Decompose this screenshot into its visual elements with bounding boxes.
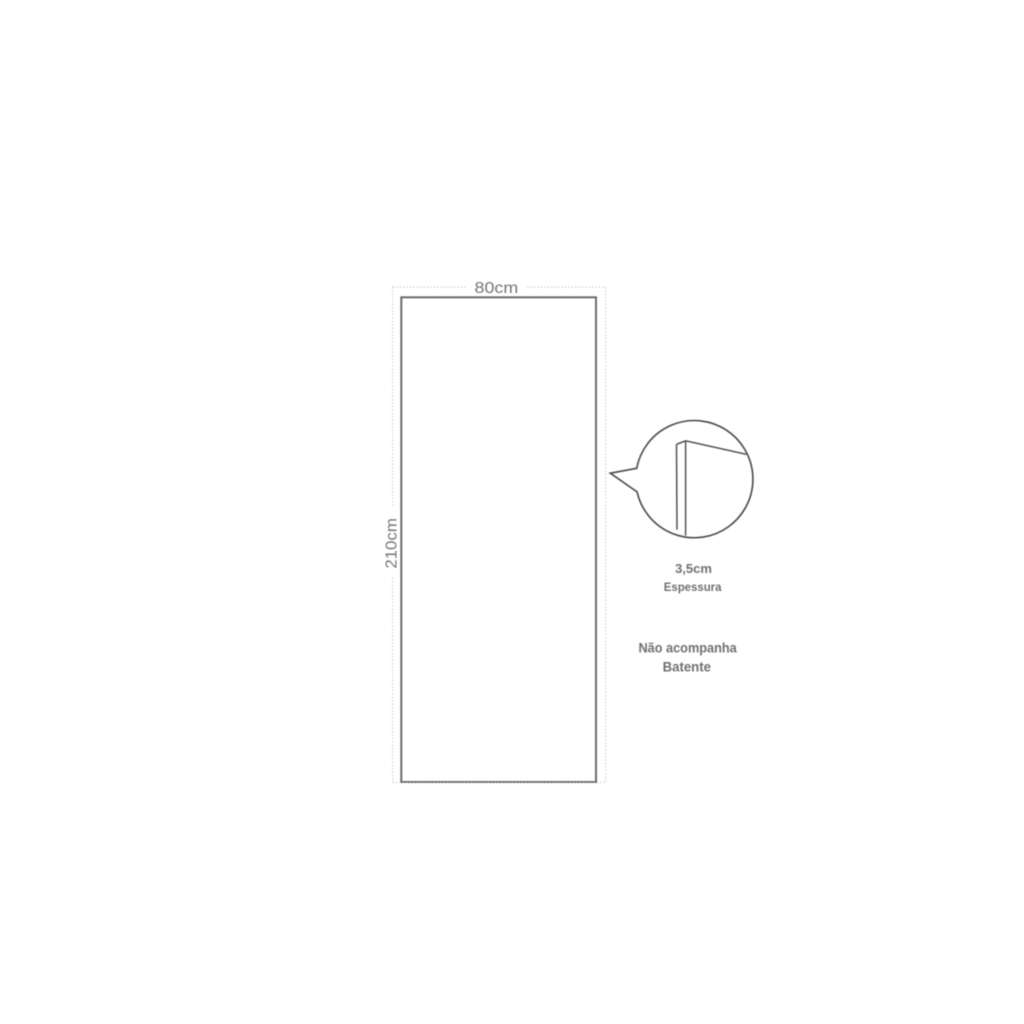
svg-text:80cm: 80cm [475,280,519,297]
svg-text:210cm: 210cm [384,518,401,569]
svg-text:Não acompanha: Não acompanha [638,640,736,656]
svg-text:Batente: Batente [663,659,711,675]
svg-text:Espessura: Espessura [664,580,722,594]
svg-text:3,5cm: 3,5cm [675,561,712,576]
